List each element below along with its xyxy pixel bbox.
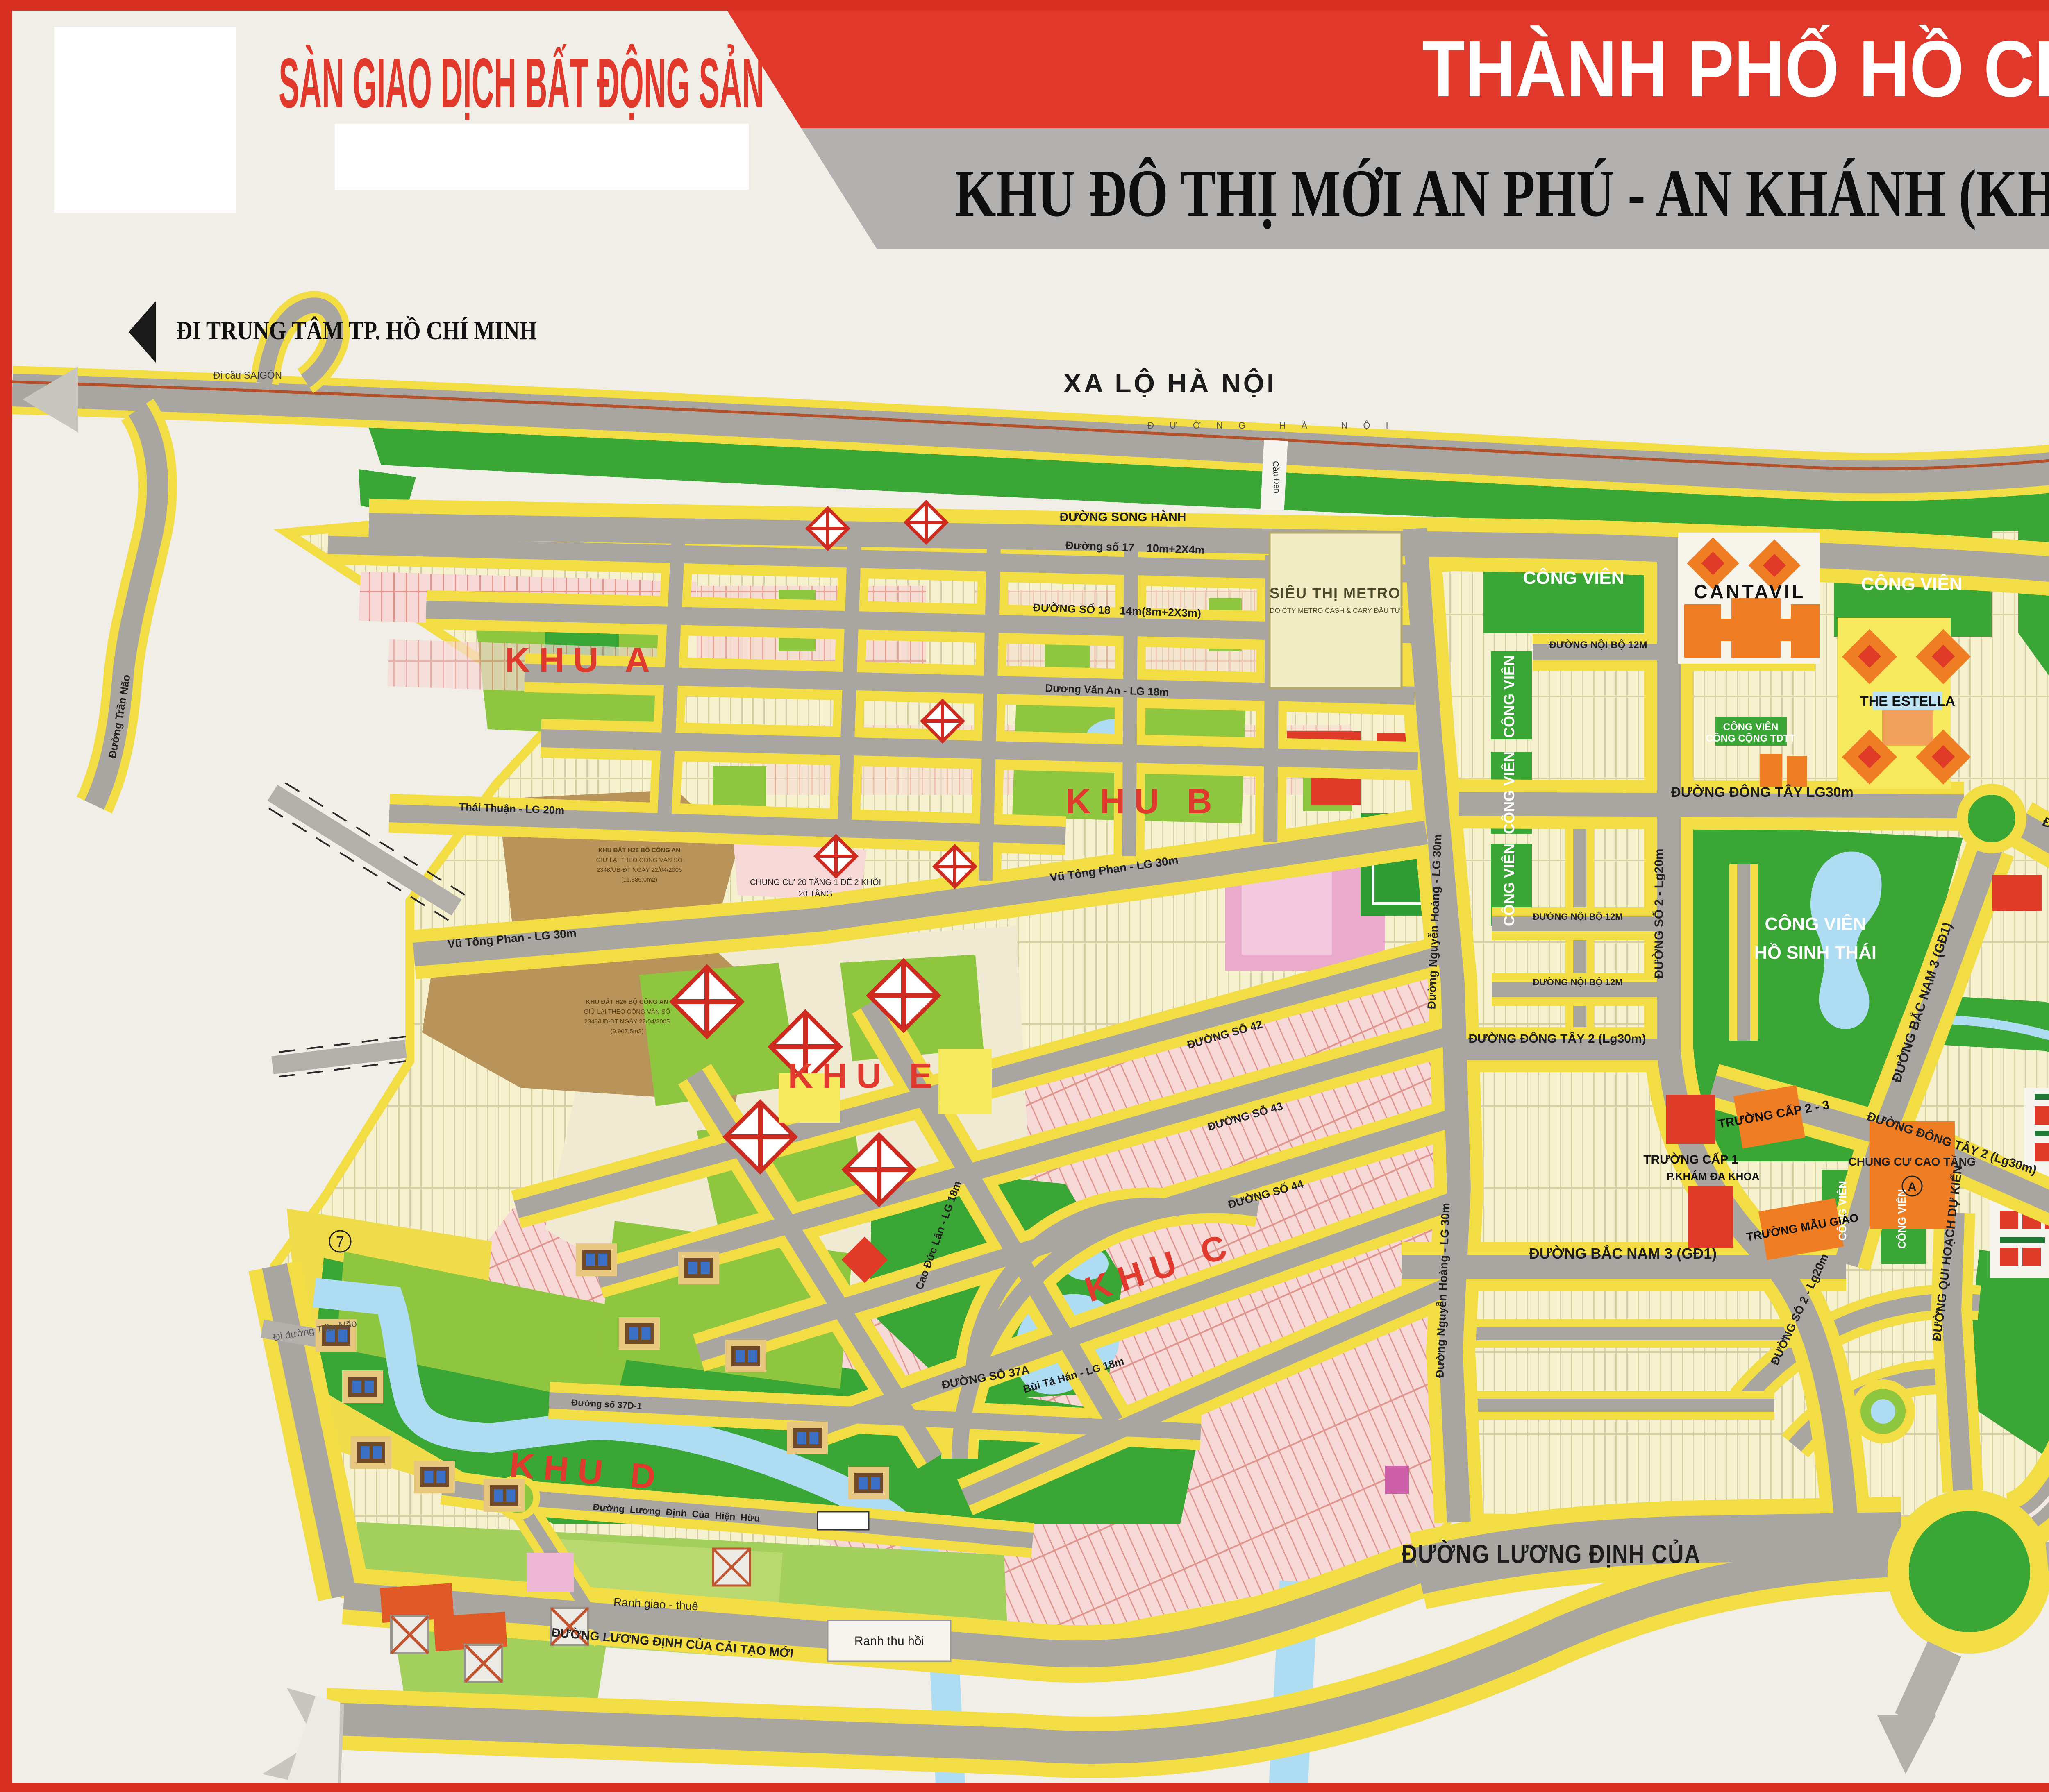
svg-text:CÔNG VIÊN: CÔNG VIÊN — [1523, 567, 1624, 588]
svg-text:(9.907,5m2): (9.907,5m2) — [611, 1028, 644, 1035]
svg-text:CANTAVIL: CANTAVIL — [1694, 581, 1806, 602]
svg-text:(11.886,0m2): (11.886,0m2) — [621, 876, 657, 883]
svg-text:XA LỘ HÀ NỘI: XA LỘ HÀ NỘI — [1063, 368, 1277, 398]
svg-text:Ranh thu hồi: Ranh thu hồi — [854, 1634, 924, 1648]
svg-text:CÔNG CỘNG TDTT: CÔNG CỘNG TDTT — [1706, 733, 1796, 744]
svg-text:Đ Ư Ờ N G H À N Ộ I: Đ Ư Ờ N G H À N Ộ I — [1147, 420, 1395, 431]
svg-text:ĐƯỜNG BẮC NAM 3 (GĐ1): ĐƯỜNG BẮC NAM 3 (GĐ1) — [1529, 1245, 1717, 1262]
svg-text:HỒ SINH THÁI: HỒ SINH THÁI — [1754, 942, 1876, 963]
svg-text:CÔNG VIÊN: CÔNG VIÊN — [1765, 913, 1866, 934]
svg-text:7: 7 — [336, 1233, 344, 1250]
svg-text:GIỮ LẠI THEO CÔNG VĂN SỐ: GIỮ LẠI THEO CÔNG VĂN SỐ — [596, 856, 683, 864]
svg-text:DO CTY METRO CASH & CARY ĐẦU T: DO CTY METRO CASH & CARY ĐẦU TƯ — [1270, 607, 1400, 615]
svg-text:ĐƯỜNG SỐ 2 - Lg20m: ĐƯỜNG SỐ 2 - Lg20m — [1652, 848, 1666, 978]
svg-text:TRƯỜNG CẤP 1: TRƯỜNG CẤP 1 — [1643, 1152, 1738, 1166]
svg-text:KHU ĐÔ THỊ MỚI AN PHÚ - AN KHÁ: KHU ĐÔ THỊ MỚI AN PHÚ - AN KHÁNH (KHU 13… — [955, 156, 2049, 231]
svg-text:Cầu Đen: Cầu Đen — [1271, 461, 1281, 494]
svg-text:CÔNG VIÊN: CÔNG VIÊN — [1500, 844, 1517, 926]
svg-text:ĐƯỜNG SONG HÀNH: ĐƯỜNG SONG HÀNH — [1060, 510, 1186, 524]
svg-text:A: A — [1908, 1180, 1917, 1194]
svg-text:CÔNG VIÊN: CÔNG VIÊN — [1500, 751, 1517, 834]
svg-text:P.KHÁM ĐA KHOA: P.KHÁM ĐA KHOA — [1667, 1170, 1760, 1182]
svg-text:CHUNG CƯ CAO TẦNG: CHUNG CƯ CAO TẦNG — [1849, 1155, 1976, 1168]
svg-text:CHUNG CƯ 20 TẦNG 1 ĐẾ 2 KHỐI: CHUNG CƯ 20 TẦNG 1 ĐẾ 2 KHỐI — [750, 877, 881, 887]
svg-text:CÔNG VIÊN: CÔNG VIÊN — [1861, 573, 1963, 594]
svg-text:KHU B: KHU B — [1065, 782, 1221, 821]
svg-text:CÔNG VIÊN: CÔNG VIÊN — [1896, 1189, 1908, 1249]
svg-text:ĐƯỜNG NỘI BỘ 12M: ĐƯỜNG NỘI BỘ 12M — [1533, 912, 1622, 922]
svg-text:KHU ĐẤT H26 BỘ CÔNG AN: KHU ĐẤT H26 BỘ CÔNG AN — [586, 998, 668, 1005]
svg-text:SÀN GIAO DỊCH BẤT ĐỘNG SẢN: SÀN GIAO DỊCH BẤT ĐỘNG SẢN — [279, 44, 764, 122]
svg-text:CÔNG VIÊN: CÔNG VIÊN — [1500, 655, 1517, 738]
svg-text:2348/UB-ĐT NGÀY 22/04/2005: 2348/UB-ĐT NGÀY 22/04/2005 — [584, 1018, 670, 1025]
svg-text:KHU E: KHU E — [788, 1057, 941, 1096]
svg-text:Đi cầu SAIGÒN: Đi cầu SAIGÒN — [213, 370, 282, 381]
svg-text:ĐƯỜNG NỘI BỘ 12M: ĐƯỜNG NỘI BỘ 12M — [1533, 977, 1622, 987]
svg-text:CÔNG VIÊN: CÔNG VIÊN — [1836, 1181, 1849, 1241]
svg-text:ĐƯỜNG NỘI BỘ 12M: ĐƯỜNG NỘI BỘ 12M — [1549, 639, 1647, 651]
svg-text:20 TẦNG: 20 TẦNG — [799, 889, 833, 898]
svg-text:KHU A: KHU A — [505, 641, 659, 680]
svg-text:THÀNH PHỐ HỒ CHÍ MINH - QUẬN 2: THÀNH PHỐ HỒ CHÍ MINH - QUẬN 2 — [1422, 24, 2049, 113]
svg-text:THE ESTELLA: THE ESTELLA — [1860, 694, 1955, 709]
svg-text:GIỮ LẠI THEO CÔNG VĂN SỐ: GIỮ LẠI THEO CÔNG VĂN SỐ — [584, 1008, 670, 1015]
svg-text:ĐI TRUNG TÂM TP. HỒ CHÍ MINH: ĐI TRUNG TÂM TP. HỒ CHÍ MINH — [176, 316, 537, 345]
svg-text:KHU ĐẤT H26 BỘ CÔNG AN: KHU ĐẤT H26 BỘ CÔNG AN — [598, 846, 680, 854]
svg-text:2348/UB-ĐT NGÀY 22/04/2005: 2348/UB-ĐT NGÀY 22/04/2005 — [597, 867, 682, 873]
svg-text:CÔNG VIÊN: CÔNG VIÊN — [1723, 721, 1779, 733]
svg-text:ĐƯỜNG ĐÔNG TÂY 2 (Lg30m): ĐƯỜNG ĐÔNG TÂY 2 (Lg30m) — [1468, 1032, 1646, 1046]
svg-text:ĐƯỜNG ĐÔNG TÂY LG30m: ĐƯỜNG ĐÔNG TÂY LG30m — [1671, 784, 1854, 800]
svg-text:ĐƯỜNG LƯƠNG ĐỊNH CỦA: ĐƯỜNG LƯƠNG ĐỊNH CỦA — [1402, 1539, 1701, 1569]
svg-text:SIÊU THỊ METRO: SIÊU THỊ METRO — [1270, 584, 1401, 601]
